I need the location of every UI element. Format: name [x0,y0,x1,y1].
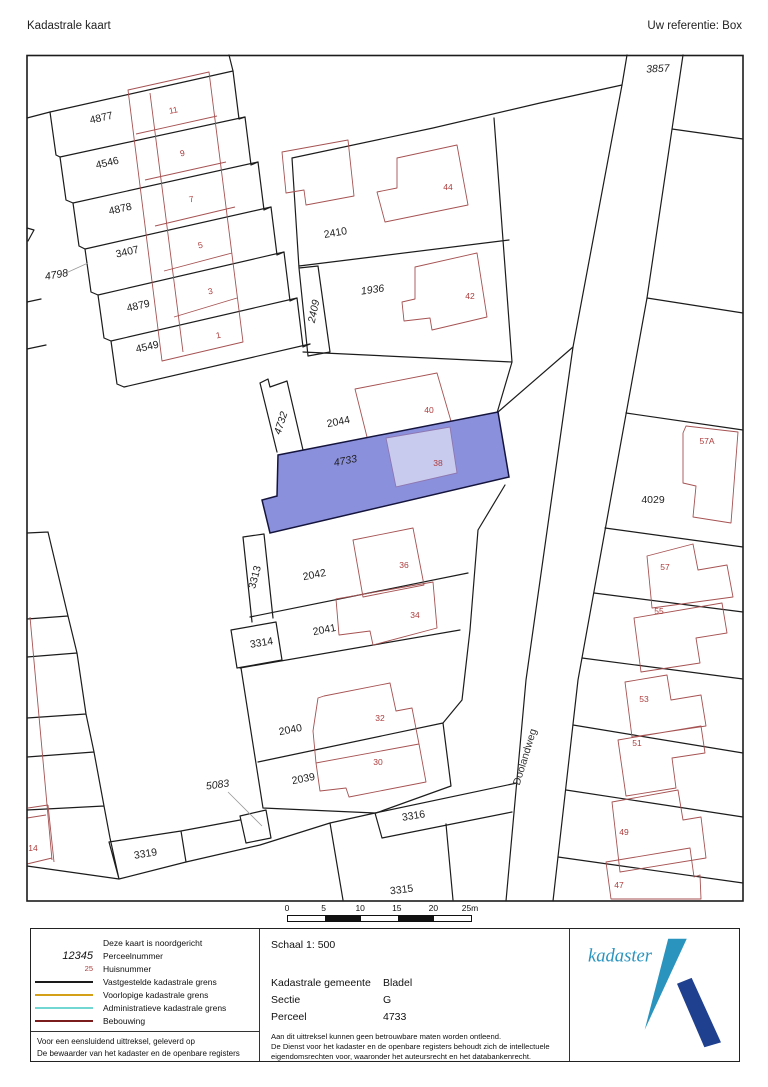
parcel-number-label: 2040 [278,722,303,738]
disclaimer-line: eigendomsrechten voor, waaronder het aut… [271,1052,563,1062]
scale-tick: 10 [355,903,364,913]
parcel-number-label: 4877 [89,110,115,127]
parcel-number-label: 4732 [272,410,291,436]
kadaster-logo: kadaster [569,929,740,1060]
extract-info-table: Kadastrale gemeente Bladel Sectie G Perc… [271,977,561,1028]
info-value: Bladel [383,977,412,994]
scale-tick: 25m [462,903,479,913]
parcel-number-label: 3314 [249,635,274,651]
legend-box: Deze kaart is noordgericht 12345 Perceel… [30,928,740,1062]
house-number-label: 30 [373,757,383,767]
parcel-number-label: 4798 [44,267,69,283]
footer-line: Voor een eensluidend uittreksel, gelever… [37,1036,259,1048]
legend-house-label: Huisnummer [103,964,151,974]
house-number-label: 36 [399,560,409,570]
house-number-label: 11 [168,104,179,116]
highlight-parcel-4733 [262,412,509,533]
house-number-label: 7 [188,194,195,205]
parcel-number-label: 4549 [135,339,161,356]
footer-line: De bewaarder van het kadaster en de open… [37,1048,259,1060]
house-number-label: 5 [197,240,204,251]
administrative-boundary-sample [35,1007,93,1009]
scale-tick: 15 [392,903,401,913]
parcel-number-label: 3319 [133,846,158,862]
parcel-number-label: 2041 [312,622,337,638]
disclaimer-line: Aan dit uittreksel kunnen geen betrouwba… [271,1032,563,1042]
parcel-number-label: 4879 [126,298,152,315]
cadastral-map: 4877454648783407479848794549241019362409… [0,0,768,928]
house-number-label: 57A [699,436,714,446]
extract-info-panel: Schaal 1: 500 Kadastrale gemeente Bladel… [259,929,570,1061]
house-number-label: 9 [179,148,186,159]
house-number-label: 32 [375,713,385,723]
info-label: Sectie [271,994,383,1011]
legend-line-label: Vastgestelde kadastrale grens [103,977,217,987]
house-number-label: 40 [424,405,434,415]
parcel-number-label: 5083 [205,777,230,792]
scale-tick: 20 [429,903,438,913]
scale-tick: 0 [285,903,290,913]
street-name-label: Doolandweg [511,727,540,786]
house-number-label: 53 [639,694,649,704]
kadaster-logo-text: kadaster [588,945,653,966]
parcel-number-label: 4546 [95,155,121,172]
legend-line-label: Bebouwing [103,1016,145,1026]
scale-bar: 0 5 10 15 20 25m [270,901,500,927]
info-value: 4733 [383,1011,406,1028]
info-label: Perceel [271,1011,383,1028]
parcel-number-label: 3316 [401,808,426,824]
parcel-number-label: 4029 [641,494,665,506]
legend-line-label: Voorlopige kadastrale grens [103,990,208,1000]
legend-parcel-label: Perceelnummer [103,951,163,961]
legend-footer: Voor een eensluidend uittreksel, gelever… [31,1031,259,1059]
house-number-label: 49 [619,827,629,837]
building-sample [35,1020,93,1022]
parcel-number-label: 3407 [115,244,141,261]
house-number-label: 38 [433,458,443,468]
legend-line-label: Administratieve kadastrale grens [103,1003,226,1013]
house-number-label: 47 [614,880,624,890]
parcel-number-label: 4878 [108,201,134,218]
parcel-number-label: 3313 [246,564,264,590]
house-number-label: 1 [215,330,222,341]
house-number-label: 55 [654,606,664,616]
house-number-label: 14 [28,843,38,853]
provisional-boundary-sample [35,994,93,996]
established-boundary-sample [35,981,93,983]
parcel-number-label: 2044 [326,414,351,430]
parcel-number-label: 2410 [323,225,348,241]
house-number-label: 3 [207,286,214,297]
disclaimer: Aan dit uittreksel kunnen geen betrouwba… [271,1032,563,1062]
house-number-label: 34 [410,610,420,620]
house-number-sample: 25 [31,964,103,973]
parcel-number-label: 3857 [646,62,671,75]
parcel-number-label: 2409 [306,299,323,325]
legend-left-panel: Deze kaart is noordgericht 12345 Perceel… [31,929,260,1061]
house-number-label: 51 [632,738,642,748]
road-doolandweg-edges [506,55,683,901]
house-number-label: 57 [660,562,670,572]
label-leader-lines [66,263,262,826]
scale-text: Schaal 1: 500 [271,939,561,951]
parcel-number-label: 2042 [302,567,327,583]
parcel-number-label: 1936 [360,282,385,297]
scale-tick: 5 [321,903,326,913]
kadastrale-kaart-page: Kadastrale kaart Uw referentie: Box [0,0,768,1087]
house-number-label: 42 [465,291,475,301]
info-value: G [383,994,391,1011]
info-label: Kadastrale gemeente [271,977,383,994]
scale-bar-segments [287,915,472,922]
north-note: Deze kaart is noordgericht [103,938,202,948]
highlight-parcel-fill [262,412,509,533]
house-number-label: 44 [443,182,453,192]
disclaimer-line: De Dienst voor het kadaster en de openba… [271,1042,563,1052]
parcel-number-label: 3315 [389,883,414,898]
kadaster-logo-panel: kadaster [569,929,739,1061]
parcel-number-sample: 12345 [31,950,103,962]
kadaster-logo-bar-icon [677,978,721,1047]
parcel-number-label: 2039 [291,771,316,787]
